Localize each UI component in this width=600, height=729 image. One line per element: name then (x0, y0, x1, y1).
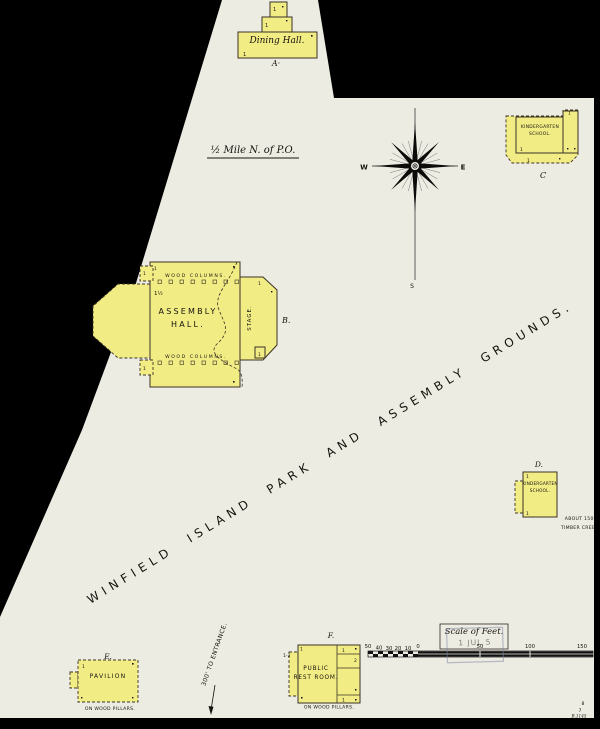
story-mark: 1 (143, 366, 146, 372)
wood-columns-bottom: WOOD COLUMNS. (165, 354, 227, 360)
side-bump (70, 672, 78, 688)
story-mark: 1 (527, 158, 530, 164)
assembly-hall-line1: ASSEMBLY (159, 307, 218, 316)
dining-hall-label: A· (271, 59, 280, 68)
story-mark: 1 (526, 474, 529, 480)
name-line1: KINDERGARTEN (521, 124, 559, 130)
scale-bar (368, 651, 593, 657)
story-mark: 1 (143, 271, 146, 277)
stamp-text: 1 JUL 5 (458, 638, 491, 648)
room-number-1: 1 (342, 648, 345, 654)
story-mark: 1 (258, 352, 261, 358)
story-mark: 1 (568, 111, 571, 117)
story-mark: 1 (243, 52, 246, 58)
name-line2: SCHOOL. (529, 131, 551, 137)
stories-mark: 1½ (154, 290, 163, 297)
tick-40: 40 (376, 646, 383, 652)
corner-mark-3: B.1145 (570, 714, 586, 719)
stage-label: STAGE. (247, 305, 253, 331)
wood-columns-top: WOOD COLUMNS. (165, 273, 227, 279)
compass-hub-dot (414, 165, 416, 167)
distance-note-line1: ABOUT 150' (565, 516, 596, 522)
name-line2: SCHOOL. (530, 488, 550, 493)
bottom-frame-strip (0, 719, 600, 729)
building-label: C (540, 171, 546, 180)
room-number-2: 2 (354, 658, 357, 664)
building-label: B. (281, 316, 290, 325)
name-line2: REST ROOM. (294, 675, 339, 681)
right-frame-strip (594, 0, 600, 729)
compass-south-label: S (410, 283, 414, 290)
story-mark: 1 (300, 647, 303, 653)
porch-square-bottom (140, 360, 153, 375)
room-number-3: 1 (342, 698, 345, 704)
tick-50L: 50 (365, 644, 372, 650)
story-mark: 1 (258, 281, 261, 287)
pillars-note: ON WOOD PILLARS. (85, 706, 135, 712)
main-building (78, 660, 138, 702)
stories-mark: 1-2 (283, 653, 291, 659)
sanborn-map-sheet: Dining Hall. A· 1 1 1 ½ Mile N. of P.O. (0, 0, 600, 729)
compass-east-label: E (461, 164, 466, 172)
building-label: E. (103, 652, 112, 661)
pillars-note: ON WOOD PILLARS. (304, 705, 354, 711)
tick-100: 100 (525, 644, 536, 650)
story-mark: 1 (273, 7, 276, 13)
dining-hall-name: Dining Hall. (248, 36, 304, 46)
building-label: F. (327, 631, 334, 640)
name-line1: KINDERGARTEN (522, 481, 557, 486)
story-mark: 1 (154, 266, 157, 272)
porch-square-top (140, 266, 153, 281)
wing (563, 111, 578, 153)
story-mark: 1 (526, 511, 529, 517)
assembly-hall-line2: HALL. (171, 320, 205, 329)
story-mark: 1 (265, 23, 268, 29)
name-line1: PUBLIC (303, 666, 329, 672)
story-mark: 1 (82, 664, 85, 670)
building-label: D. (534, 460, 543, 469)
distance-note-line2: TIMBER CREE (560, 525, 595, 531)
pavilion-name: PAVILION (90, 673, 127, 680)
corner-mark-1: 8 (582, 701, 585, 707)
compass-west-label: W (360, 164, 368, 172)
half-mile-text: ½ Mile N. of P.O. (211, 145, 296, 156)
tick-150: 150 (577, 644, 588, 650)
story-mark: 1 (520, 147, 523, 153)
